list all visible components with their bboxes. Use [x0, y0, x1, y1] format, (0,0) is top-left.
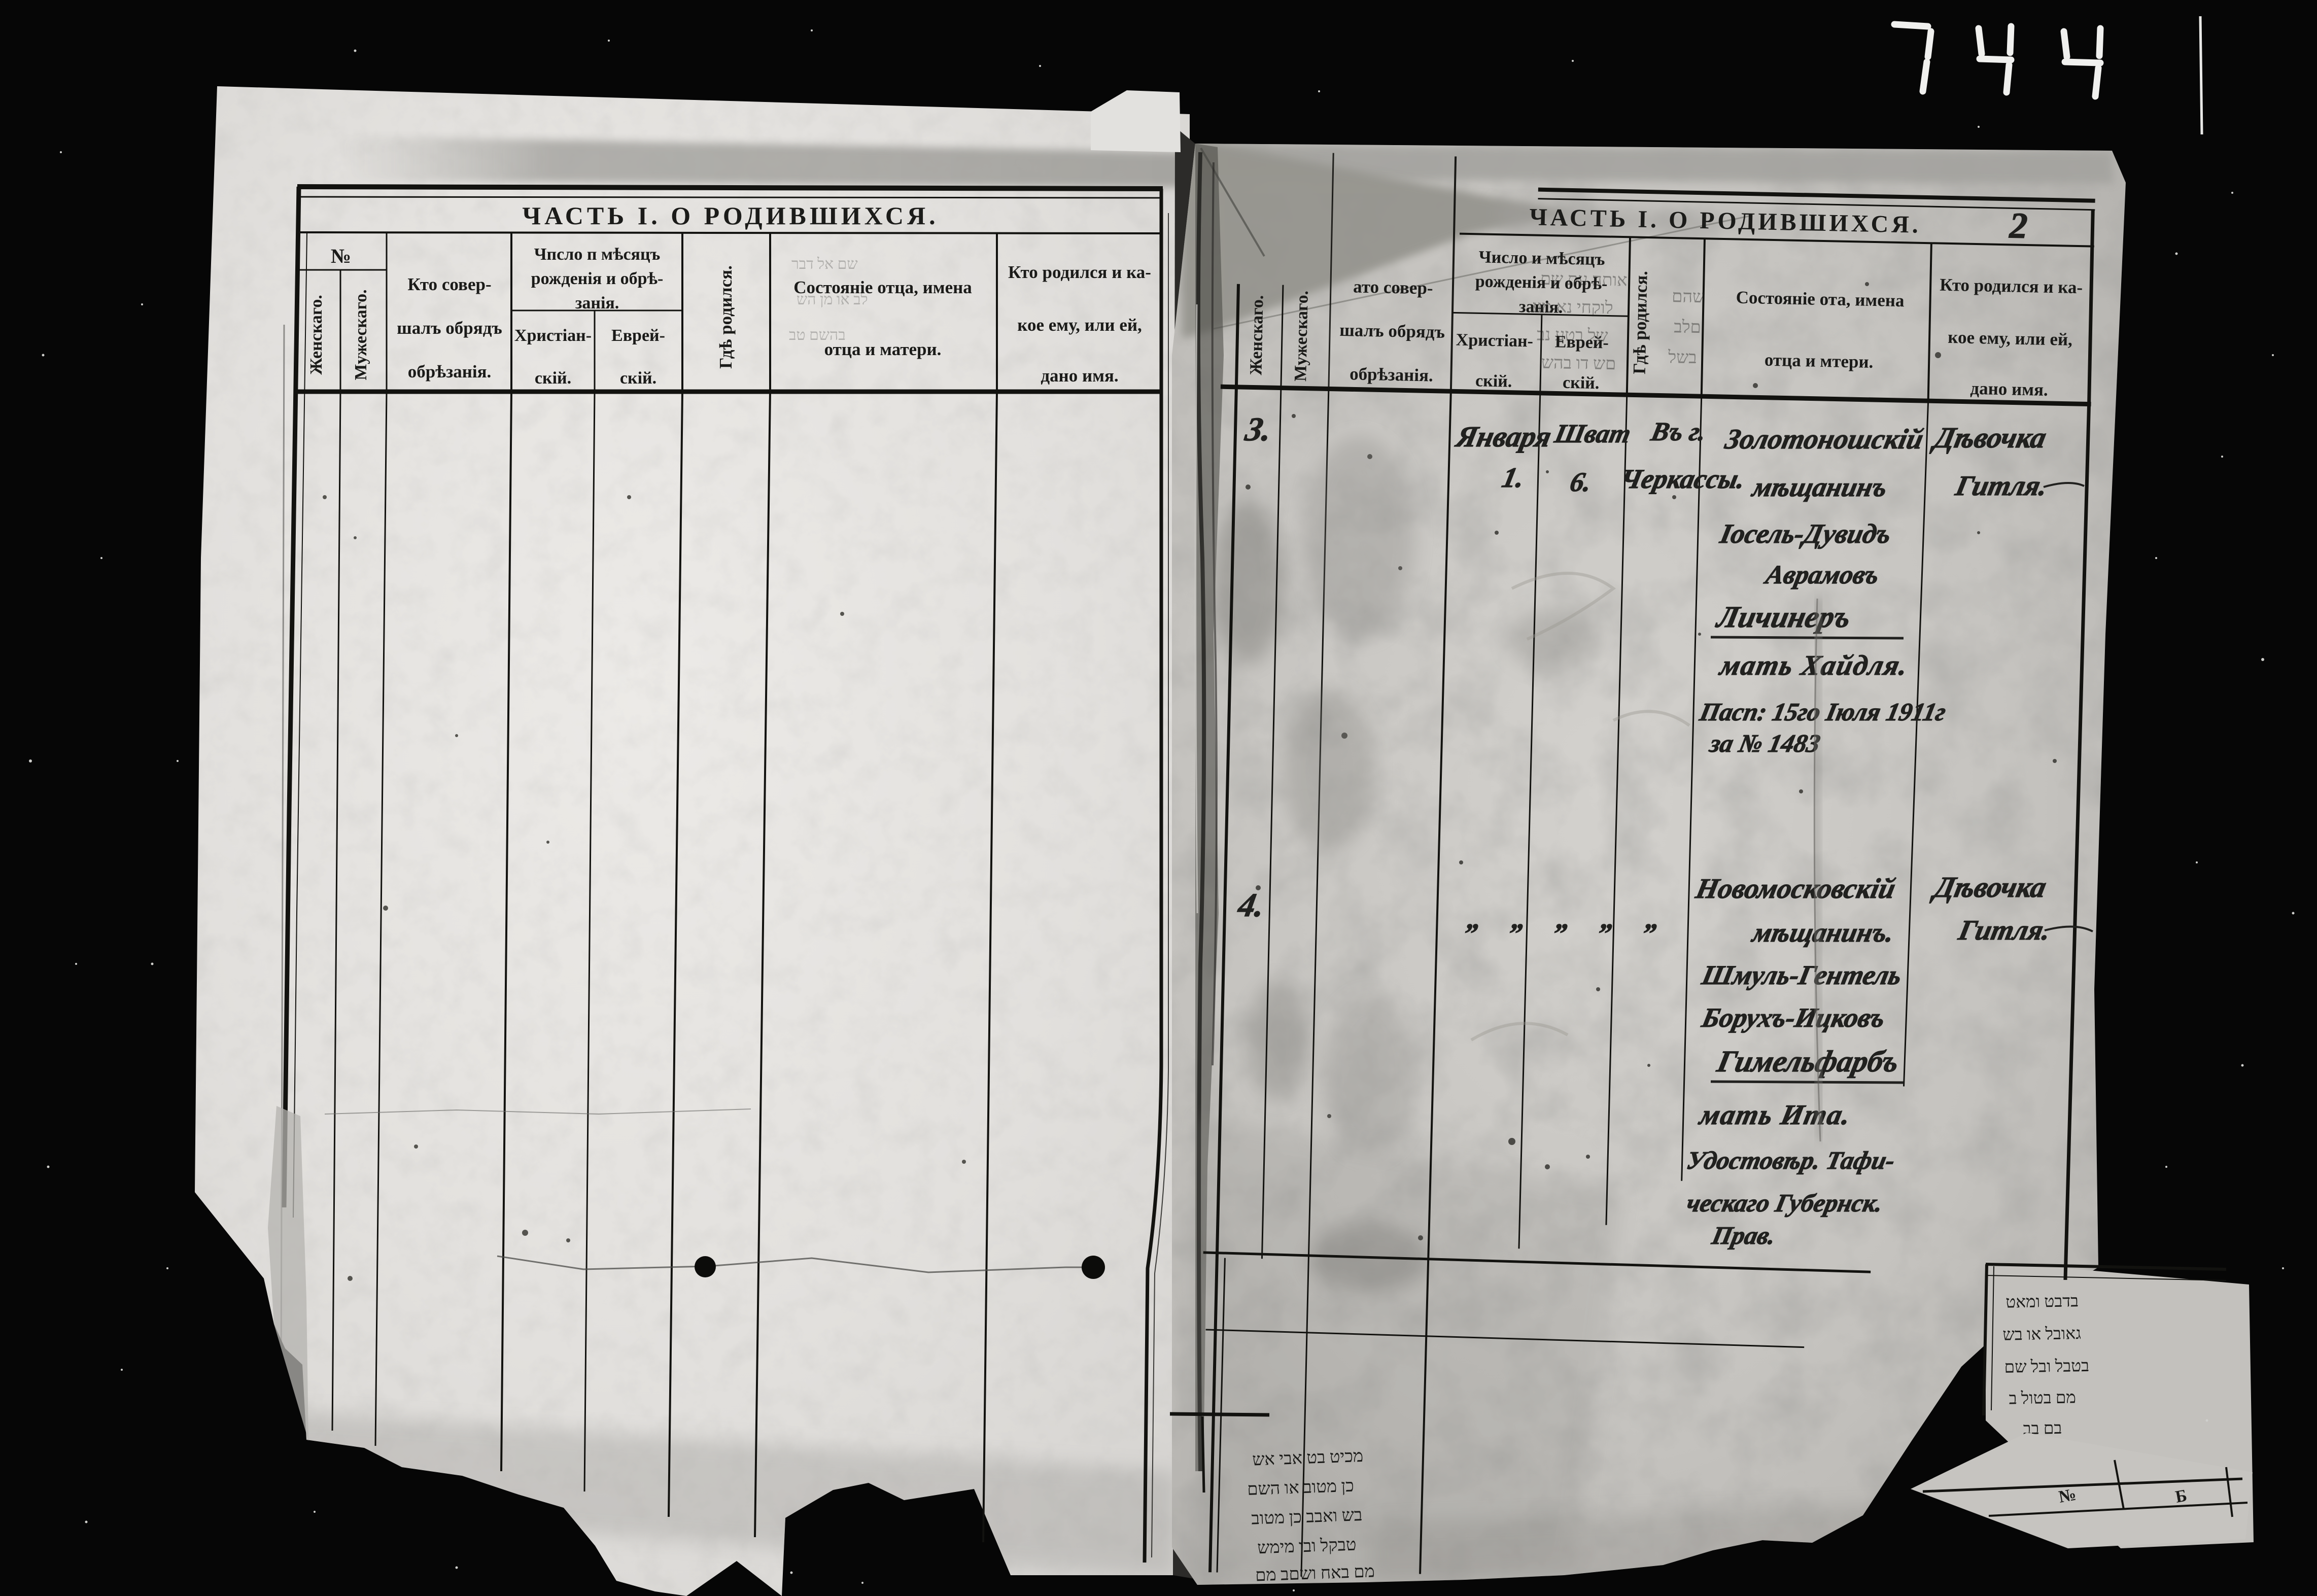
svg-text:Мужескаго.: Мужескаго.	[1291, 290, 1312, 381]
svg-text:Дѣвочка: Дѣвочка	[1929, 422, 2049, 454]
svg-text:שהם: שהם	[1672, 287, 1705, 306]
svg-text:אותה עת שם: אותה עת שם	[1540, 270, 1628, 290]
svg-text:Черкассы.: Черкассы.	[1618, 464, 1748, 494]
svg-text:Женскаго.: Женскаго.	[1247, 295, 1267, 375]
svg-text:Гдѣ родился.: Гдѣ родился.	[1630, 270, 1651, 374]
svg-text:מם בטול ב: מם בטול ב	[2009, 1389, 2076, 1408]
svg-text:ЧАСТЬ I. О РОДИВШИХСЯ.: ЧАСТЬ I. О РОДИВШИХСЯ.	[522, 201, 939, 230]
svg-text:כן מטוב או השם: כן מטוב או השם	[1247, 1477, 1355, 1499]
svg-text:обрѣзанія.: обрѣзанія.	[408, 362, 492, 381]
svg-text:Новомосковскій: Новомосковскій	[1692, 874, 1898, 905]
svg-text:скій.: скій.	[620, 369, 656, 388]
svg-text:טבקל ובו מימש: טבקל ובו מימש	[1257, 1535, 1357, 1557]
svg-text:גאובל או בש: גאובל או בש	[2002, 1325, 2081, 1344]
svg-text:Шват: Шват	[1551, 420, 1633, 448]
svg-text:шалъ обрядъ: шалъ обрядъ	[1339, 320, 1445, 342]
svg-text:кое ему, или ей,: кое ему, или ей,	[1017, 315, 1142, 335]
svg-text:Борухъ-Ицковъ: Борухъ-Ицковъ	[1699, 1002, 1888, 1033]
svg-text:Золотоношскій: Золотоношскій	[1722, 424, 1926, 455]
svg-text:בהשם טב: בהשם טב	[789, 327, 846, 343]
svg-text:Аврамовъ: Аврамовъ	[1762, 561, 1882, 589]
svg-text:обрѣзанія.: обрѣзанія.	[1350, 364, 1433, 385]
svg-text:Кто родился и ка-: Кто родился и ка-	[1008, 262, 1151, 282]
svg-text:לוקחי נא מע: לוקחי נא מע	[1532, 297, 1613, 318]
svg-text:Гитля.: Гитля.	[1955, 915, 2053, 946]
svg-text:בדבט ומאט: בדבט ומאט	[2005, 1292, 2079, 1312]
svg-text:Личинеръ: Личинеръ	[1713, 601, 1854, 634]
svg-text:של בטע נב: של בטע נב	[1537, 326, 1608, 345]
svg-text:дано имя.: дано имя.	[1970, 378, 2048, 400]
svg-text:№: №	[2057, 1485, 2078, 1507]
svg-text:בשל: בשל	[1668, 348, 1697, 367]
svg-text:шалъ обрядъ: шалъ обрядъ	[397, 318, 502, 338]
svg-text:мѣщанинъ.: мѣщанинъ.	[1749, 917, 1897, 948]
svg-text:Гитля.: Гитля.	[1952, 471, 2050, 502]
svg-text:мѣщанинъ: мѣщанинъ	[1749, 472, 1890, 502]
svg-text:מכיט בט אבי אש: מכיט בט אבי אש	[1252, 1447, 1364, 1470]
svg-text:Женскаго.: Женскаго.	[307, 295, 326, 375]
svg-text:לב או מן הש: לב או מן הש	[797, 291, 868, 308]
svg-text:Кто совер-: Кто совер-	[407, 274, 491, 294]
svg-text:Пасп: 15го Іюля 1911г: Пасп: 15го Іюля 1911г	[1697, 698, 1949, 725]
svg-text:Кто родился и ка-: Кто родился и ка-	[1940, 275, 2083, 298]
svg-text:скій.: скій.	[535, 369, 571, 388]
svg-text:Чпсло п мѣсяцъ: Чпсло п мѣсяцъ	[534, 245, 661, 264]
svg-text:„ „ „ „ „: „ „ „ „ „	[1465, 904, 1664, 935]
svg-text:ато совер-: ато совер-	[1353, 276, 1433, 298]
svg-text:№: №	[331, 245, 351, 267]
svg-text:םלב: םלב	[1674, 318, 1701, 337]
svg-text:Христіан-: Христіан-	[514, 326, 592, 345]
svg-text:ческаго Губернск.: ческаго Губернск.	[1684, 1189, 1886, 1217]
svg-text:םש דו בהש: םש דו בהש	[1541, 354, 1616, 374]
svg-text:שם אל דבר: שם אל דבר	[791, 256, 858, 272]
svg-text:кое ему, или ей,: кое ему, или ей,	[1948, 327, 2072, 350]
svg-text:отца и мтери.: отца и мтери.	[1765, 350, 1874, 372]
svg-text:Въ г.: Въ г.	[1648, 418, 1709, 446]
svg-text:скій.: скій.	[1563, 373, 1600, 393]
svg-text:Еврей-: Еврей-	[611, 326, 665, 345]
svg-text:Христіан-: Христіан-	[1456, 330, 1533, 351]
svg-text:בש ואבב כן מטוב: בש ואבב כן מטוב	[1251, 1506, 1363, 1529]
svg-text:Дѣвочка: Дѣвочка	[1929, 871, 2049, 904]
svg-text:Шмуль-Гентель: Шмуль-Гентель	[1699, 960, 1905, 990]
svg-text:Гимельфарбъ: Гимельфарбъ	[1714, 1045, 1902, 1079]
svg-text:Прав.: Прав.	[1709, 1221, 1778, 1249]
svg-text:дано имя.: дано имя.	[1041, 366, 1118, 386]
svg-text:за № 1483: за № 1483	[1707, 729, 1823, 757]
svg-text:рожденія и обрѣ-: рожденія и обрѣ-	[531, 269, 664, 288]
svg-text:בטבל ובל שם: בטבל ובל שם	[2004, 1357, 2089, 1377]
svg-text:Удостовѣр. Тафи-: Удостовѣр. Тафи-	[1684, 1146, 1898, 1174]
svg-text:занія.: занія.	[575, 294, 619, 313]
svg-text:мать Ита.: мать Ита.	[1696, 1100, 1854, 1131]
svg-text:Состояніе ота, имена: Состояніе ота, имена	[1736, 288, 1905, 311]
svg-text:Число и мѣсяцъ: Число и мѣсяцъ	[1478, 248, 1605, 269]
svg-text:Января: Января	[1453, 421, 1554, 453]
svg-text:скій.: скій.	[1475, 371, 1512, 391]
svg-text:Гдѣ родился.: Гдѣ родился.	[716, 265, 736, 369]
svg-text:Іосель-Дувидъ: Іосель-Дувидъ	[1717, 518, 1894, 549]
svg-text:2: 2	[2009, 205, 2028, 246]
svg-text:Мужескаго.: Мужескаго.	[352, 289, 370, 380]
